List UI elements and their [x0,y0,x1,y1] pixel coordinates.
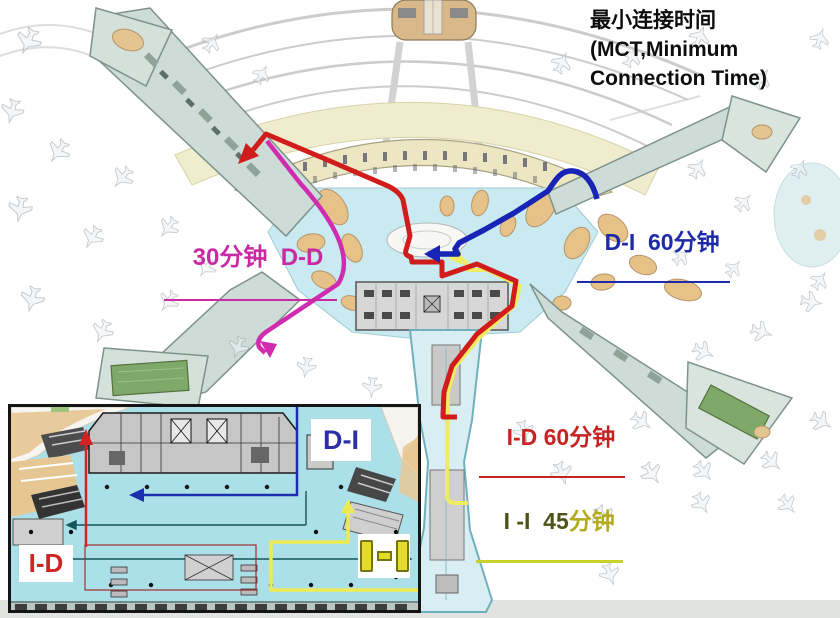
page-title: 最小连接时间 (MCT,Minimum Connection Time) [590,6,840,93]
title-line-1: 最小连接时间 [590,6,840,35]
label-ii-unit-text: 分钟 [569,508,615,534]
inset-ii-bar-right [396,540,409,572]
label-ii-45min: I -I 45分钟 [476,485,623,563]
title-line-2: (MCT,Minimum [590,35,840,64]
inset-label-di-text: D-I [323,425,359,456]
inset-ii-bar-left [360,540,373,572]
inset-label-ii: I-I [358,534,410,578]
inset-bottom-band [11,602,418,610]
airport-mct-infographic: D-I I-D I-I 最小连接时间 (MCT,Minimum Connecti… [0,0,840,618]
label-dd-text: 30分钟 D-D [193,244,324,271]
label-ii-time-text: I -I 45 [504,508,569,534]
label-id-60min: I-D 60分钟 [479,401,625,478]
inset-label-di: D-I [311,419,371,461]
title-line-3: Connection Time) [590,64,840,93]
inset-label-id: I-D [19,545,73,582]
inset-floorplan: D-I I-D I-I [8,404,421,613]
inset-fixtures [111,555,257,597]
label-di-text: D-I 60分钟 [605,229,720,255]
label-di-60min: D-I 60分钟 [577,206,730,283]
route-di [424,171,597,263]
label-dd-30min: 30分钟 D-D [164,220,337,301]
inset-label-id-text: I-D [29,548,64,579]
label-id-text: I-D 60分钟 [507,424,616,450]
